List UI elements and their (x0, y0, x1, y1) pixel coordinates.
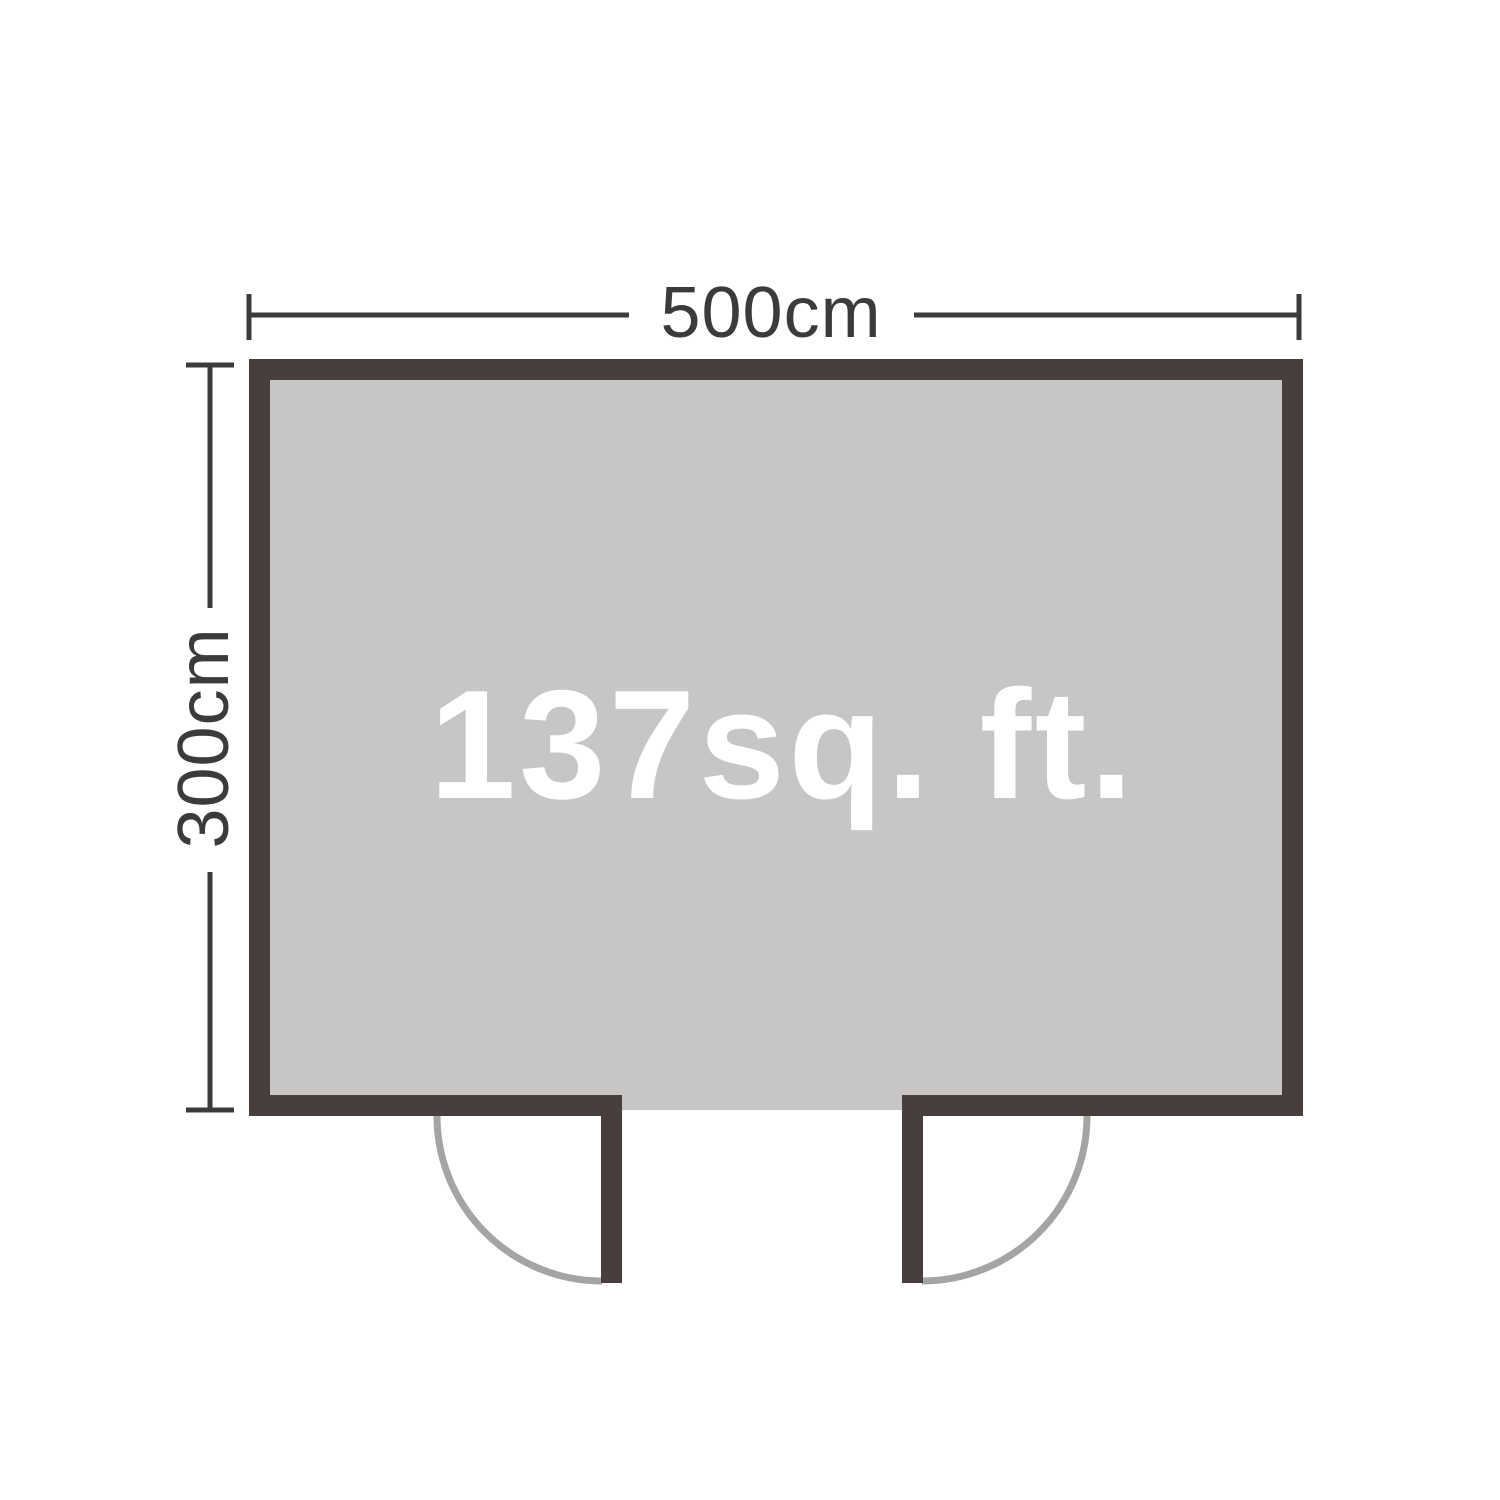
svg-text:300cm: 300cm (164, 627, 244, 848)
svg-text:137sq. ft.: 137sq. ft. (430, 658, 1137, 831)
svg-text:500cm: 500cm (660, 273, 881, 353)
